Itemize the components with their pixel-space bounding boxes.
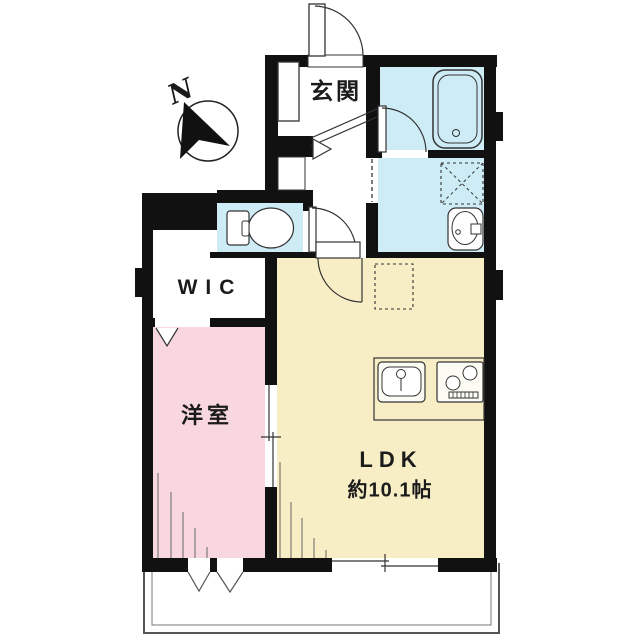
washbasin	[448, 208, 483, 250]
compass	[178, 101, 238, 161]
western-room-label: 洋室	[181, 398, 233, 430]
ldk-size-label: 約10.1帖	[348, 474, 433, 503]
casement-window-1	[188, 572, 210, 591]
storage-nook	[278, 157, 305, 190]
toilet-fixture	[227, 208, 294, 248]
room-western	[153, 327, 265, 558]
room-ldk	[277, 258, 484, 558]
pillar-right-lower	[484, 270, 503, 300]
casement-window-2	[217, 572, 243, 592]
pillar-right-upper	[484, 112, 503, 141]
wic-label: WIC	[178, 276, 243, 300]
kitchen-stove	[437, 362, 483, 402]
pillar-left	[135, 268, 152, 297]
entrance-step-arrow	[313, 139, 331, 159]
entrance-door	[308, 4, 363, 67]
kitchen-sink	[378, 362, 425, 402]
shoe-cabinet	[278, 62, 299, 121]
floor-plan: N 玄関 WIC 洋室 LDK 約10.1帖	[0, 0, 640, 640]
room-bathroom	[380, 67, 484, 150]
ldk-label: LDK	[359, 447, 422, 473]
genkan-label: 玄関	[310, 72, 362, 106]
